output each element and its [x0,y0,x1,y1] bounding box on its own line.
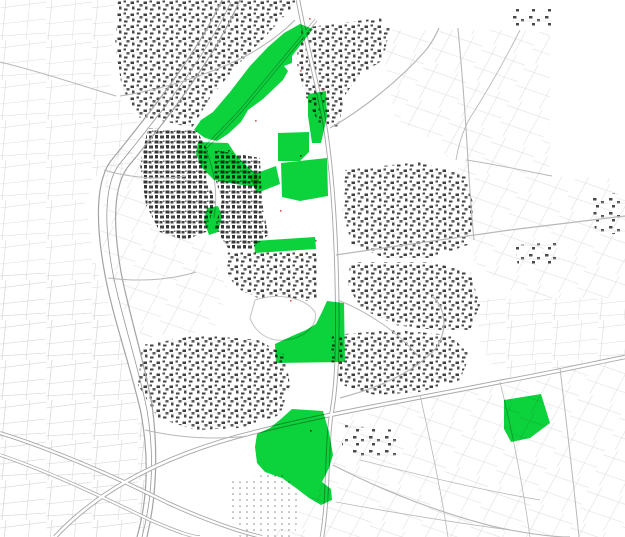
urban-south-res [138,335,290,430]
urban-right-edge-a [592,192,625,235]
urban-top-right-cluster [512,8,552,30]
zone-block-north-b[interactable] [281,158,328,201]
red-accent-5 [280,210,282,212]
urban-east-res-north [342,162,475,258]
urban-right-edge-b [515,242,560,268]
city-map [0,0,625,537]
red-accent-1 [300,70,302,72]
zone-block-north-a[interactable] [278,132,309,161]
red-accent-2 [255,120,257,122]
red-accent-0 [309,18,311,20]
map-viewport[interactable] [0,0,625,537]
red-accent-7 [290,300,292,302]
